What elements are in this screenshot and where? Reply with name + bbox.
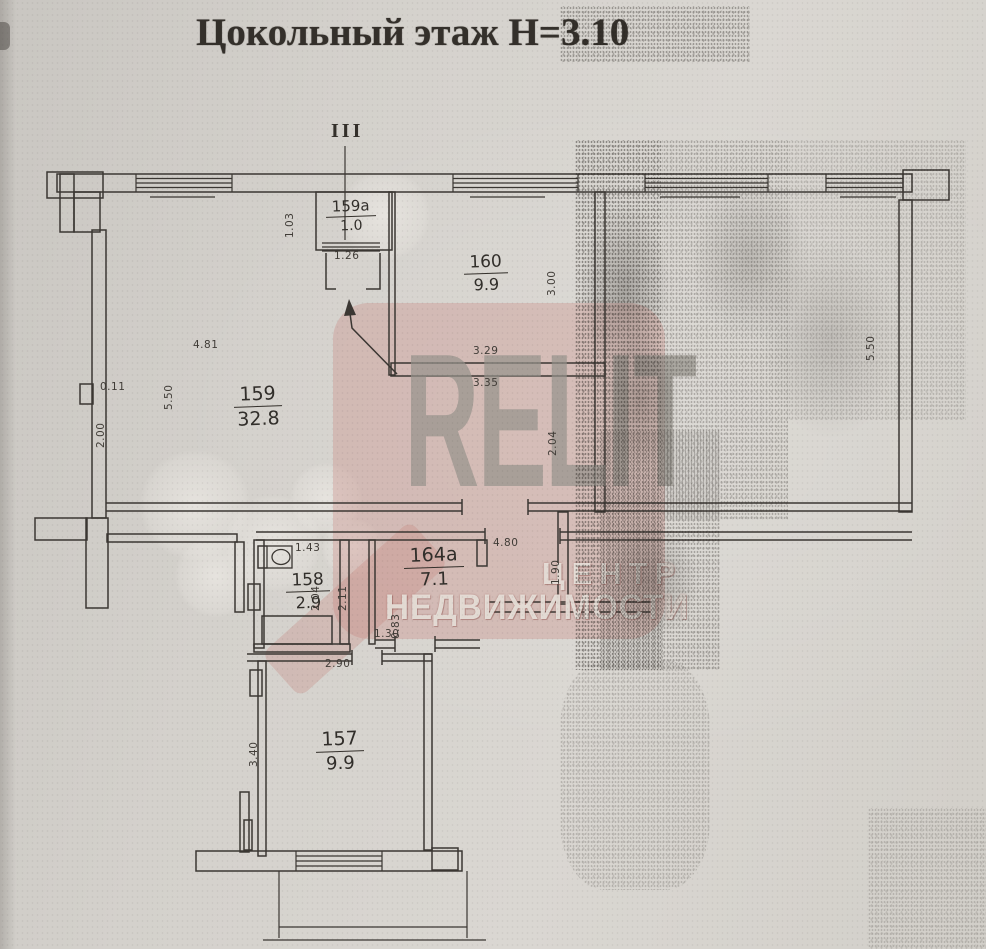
room-label-158: 158 2.9: [275, 569, 340, 613]
room-number: 159: [233, 382, 282, 408]
dim-corridor-height: 1.90: [549, 560, 563, 585]
room-number: 160: [463, 251, 508, 275]
dim-160-width1: 3.29: [473, 345, 498, 357]
wall-east: [899, 200, 912, 512]
room-label-164a: 164а 7.1: [385, 542, 483, 591]
dim-159-width: 4.81: [193, 339, 218, 351]
smudge-band: [788, 140, 966, 420]
dim-160-width2: 3.35: [473, 377, 498, 389]
smudge-band: [560, 660, 710, 890]
window-hatch-top: [136, 174, 903, 197]
room-area: 1.0: [314, 217, 389, 236]
room-label-157: 157 9.9: [302, 727, 378, 776]
scan-bubble: [175, 535, 257, 617]
watermark-brand: RELIT: [404, 336, 695, 507]
dim-notch: 0.11: [100, 381, 125, 393]
dim-160-height: 3.00: [545, 271, 559, 296]
room-number: 164а: [403, 543, 464, 569]
scan-corner-mark: [0, 22, 10, 50]
scanned-floor-plan: RELIT ЦЕНТР НЕДВИЖИМОСТИ Цокольный этаж …: [0, 0, 986, 949]
dim-158-width: 1.43: [295, 542, 320, 554]
dim-159a-width: 1.26: [334, 250, 359, 262]
room-area: 9.9: [303, 752, 378, 776]
dim-door-height: 0.83: [389, 614, 403, 639]
room-area: 32.8: [220, 407, 297, 432]
dim-159-height2: 2.00: [94, 423, 108, 448]
dim-164a-height: 2.11: [336, 586, 350, 611]
dim-157-width: 2.90: [325, 658, 350, 670]
entrance-marker: III: [331, 120, 363, 143]
dim-157-height: 3.40: [247, 742, 261, 767]
room-number: 157: [315, 727, 364, 753]
room-area: 7.1: [386, 567, 483, 591]
dim-159a-height: 1.03: [283, 213, 297, 238]
wall-west: [35, 174, 108, 608]
porch-outline: [263, 871, 486, 940]
watermark-line2: НЕДВИЖИМОСТИ: [385, 588, 689, 628]
dim-158-height: 2.04: [309, 586, 323, 611]
dim-159-height: 5.50: [162, 385, 176, 410]
room-number: 158: [285, 569, 330, 593]
smudge-band: [868, 808, 986, 949]
smudge-blotch: [760, 240, 900, 440]
wall-top: [47, 170, 949, 200]
dim-mid-height: 2.04: [546, 431, 560, 456]
smudge-blotch: [690, 180, 810, 340]
room-label-159a: 159а 1.0: [313, 196, 388, 236]
watermark-line1: ЦЕНТР: [542, 556, 682, 592]
room-number: 159а: [325, 196, 375, 218]
room-label-159: 159 32.8: [219, 382, 297, 432]
room-area: 9.9: [452, 274, 521, 295]
scan-edge-shadow: [0, 0, 16, 949]
dim-corridor-width: 4.80: [493, 537, 518, 549]
dim-right-height: 5.50: [864, 336, 878, 361]
page-title: Цокольный этаж Н=3.10: [196, 10, 629, 55]
room-label-160: 160 9.9: [451, 251, 520, 295]
window-hatch-157: [296, 851, 382, 871]
